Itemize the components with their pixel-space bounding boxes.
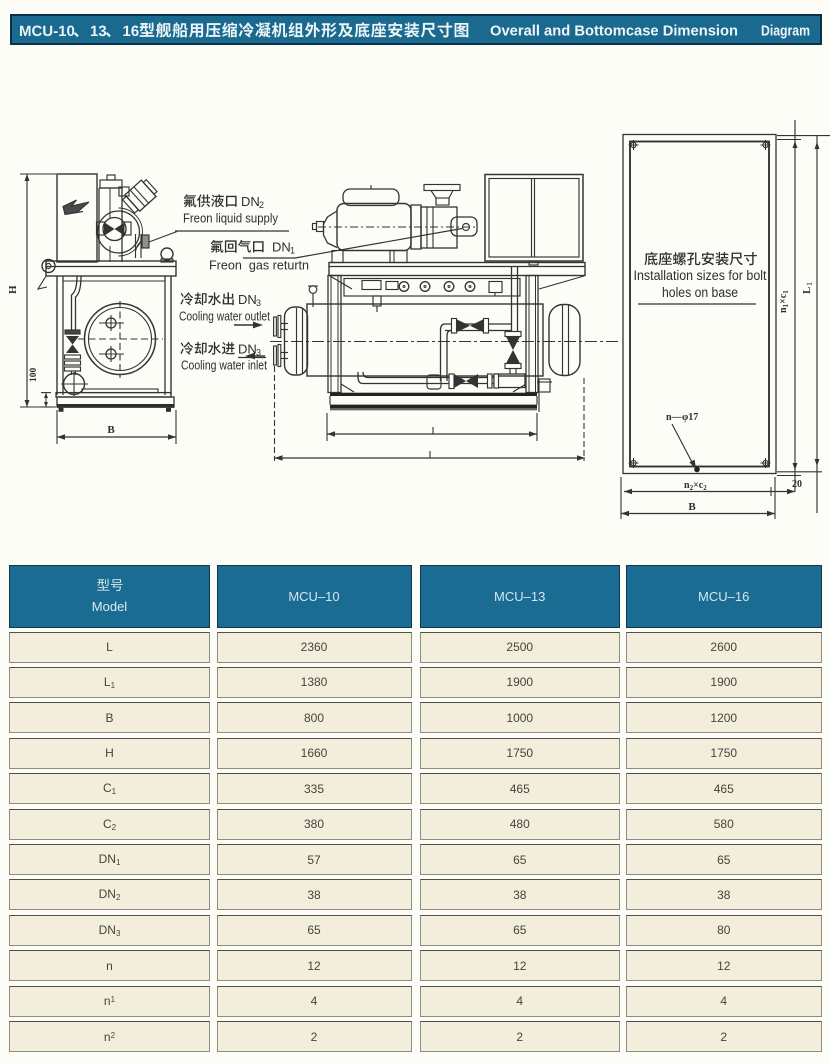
svg-text:n2×c2: n2×c2 xyxy=(684,480,707,492)
svg-text:Freon gas returtn: Freon gas returtn xyxy=(209,258,309,273)
svg-text:Freon liquid supply: Freon liquid supply xyxy=(183,211,278,226)
svg-text:DN: DN xyxy=(272,240,291,255)
svg-text:DN: DN xyxy=(241,194,260,209)
svg-text:1: 1 xyxy=(290,246,295,256)
svg-text:n—: n— xyxy=(666,412,683,423)
svg-text:B: B xyxy=(107,424,115,436)
svg-text:100: 100 xyxy=(29,368,39,383)
svg-text:3: 3 xyxy=(256,348,261,358)
svg-text:20: 20 xyxy=(792,479,802,490)
svg-text:Cooling water outlet: Cooling water outlet xyxy=(179,309,270,324)
svg-text:φ17: φ17 xyxy=(682,412,698,423)
svg-text:Cooling water inlet: Cooling water inlet xyxy=(181,358,267,373)
svg-text:DN: DN xyxy=(238,342,257,357)
svg-text:H: H xyxy=(7,285,19,294)
svg-text:1: 1 xyxy=(805,282,814,286)
svg-text:DN: DN xyxy=(238,292,257,307)
svg-text:n1×c1: n1×c1 xyxy=(778,290,790,313)
svg-text:B: B xyxy=(688,501,696,513)
svg-text:2: 2 xyxy=(259,200,264,210)
svg-text:3: 3 xyxy=(256,298,261,308)
svg-text:holes on base: holes on base xyxy=(662,285,738,300)
svg-text:L: L xyxy=(801,287,813,294)
svg-text:Installation sizes for bolt: Installation sizes for bolt xyxy=(634,268,767,283)
